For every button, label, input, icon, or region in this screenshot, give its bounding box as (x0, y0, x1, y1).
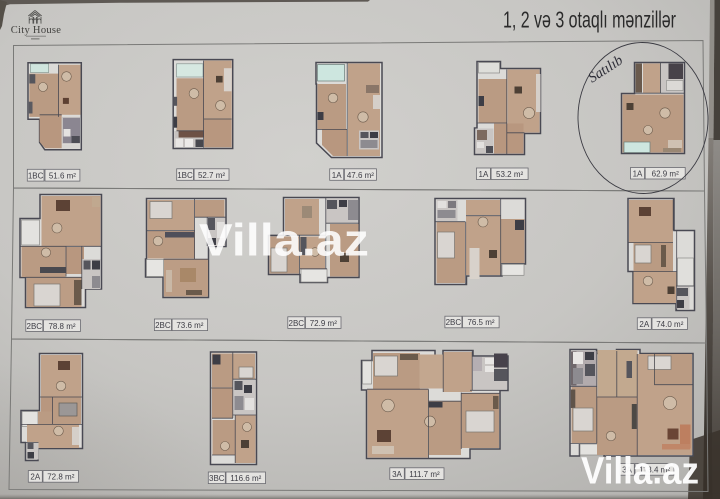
svg-text:1A: 1A (479, 170, 489, 179)
svg-text:Villa.az: Villa.az (581, 451, 699, 493)
svg-text:78.8 m²: 78.8 m² (48, 322, 75, 331)
svg-text:3A: 3A (392, 470, 402, 479)
svg-text:1A: 1A (332, 171, 342, 180)
svg-text:Villa.az: Villa.az (199, 215, 369, 266)
svg-text:73.6 m²: 73.6 m² (176, 321, 203, 330)
svg-text:62.9 m²: 62.9 m² (652, 170, 679, 179)
svg-text:47.6 m²: 47.6 m² (347, 171, 374, 180)
svg-text:City House: City House (11, 25, 62, 36)
svg-text:2BC: 2BC (446, 318, 462, 327)
svg-text:2A: 2A (30, 473, 40, 482)
svg-text:1, 2 və 3 otaqlı mənzillər: 1, 2 və 3 otaqlı mənzillər (503, 7, 676, 33)
svg-text:72.8 m²: 72.8 m² (47, 473, 74, 482)
svg-text:53.2 m²: 53.2 m² (496, 170, 523, 179)
svg-text:1A: 1A (633, 170, 643, 179)
svg-text:51.6 m²: 51.6 m² (49, 171, 76, 180)
svg-text:116.6 m²: 116.6 m² (230, 474, 261, 483)
svg-text:2BC: 2BC (289, 319, 305, 328)
svg-text:3BC: 3BC (209, 474, 225, 483)
svg-text:74.0 m²: 74.0 m² (656, 320, 683, 329)
svg-text:2A: 2A (639, 320, 649, 329)
svg-text:52.7 m²: 52.7 m² (198, 171, 225, 180)
svg-text:72.9 m²: 72.9 m² (310, 319, 337, 328)
svg-text:1BC: 1BC (177, 171, 193, 180)
svg-text:2BC: 2BC (27, 322, 43, 331)
svg-text:111.7 m²: 111.7 m² (409, 470, 440, 479)
svg-text:76.5 m²: 76.5 m² (467, 318, 494, 327)
svg-text:2BC: 2BC (155, 321, 171, 330)
svg-text:1BC: 1BC (28, 171, 44, 180)
